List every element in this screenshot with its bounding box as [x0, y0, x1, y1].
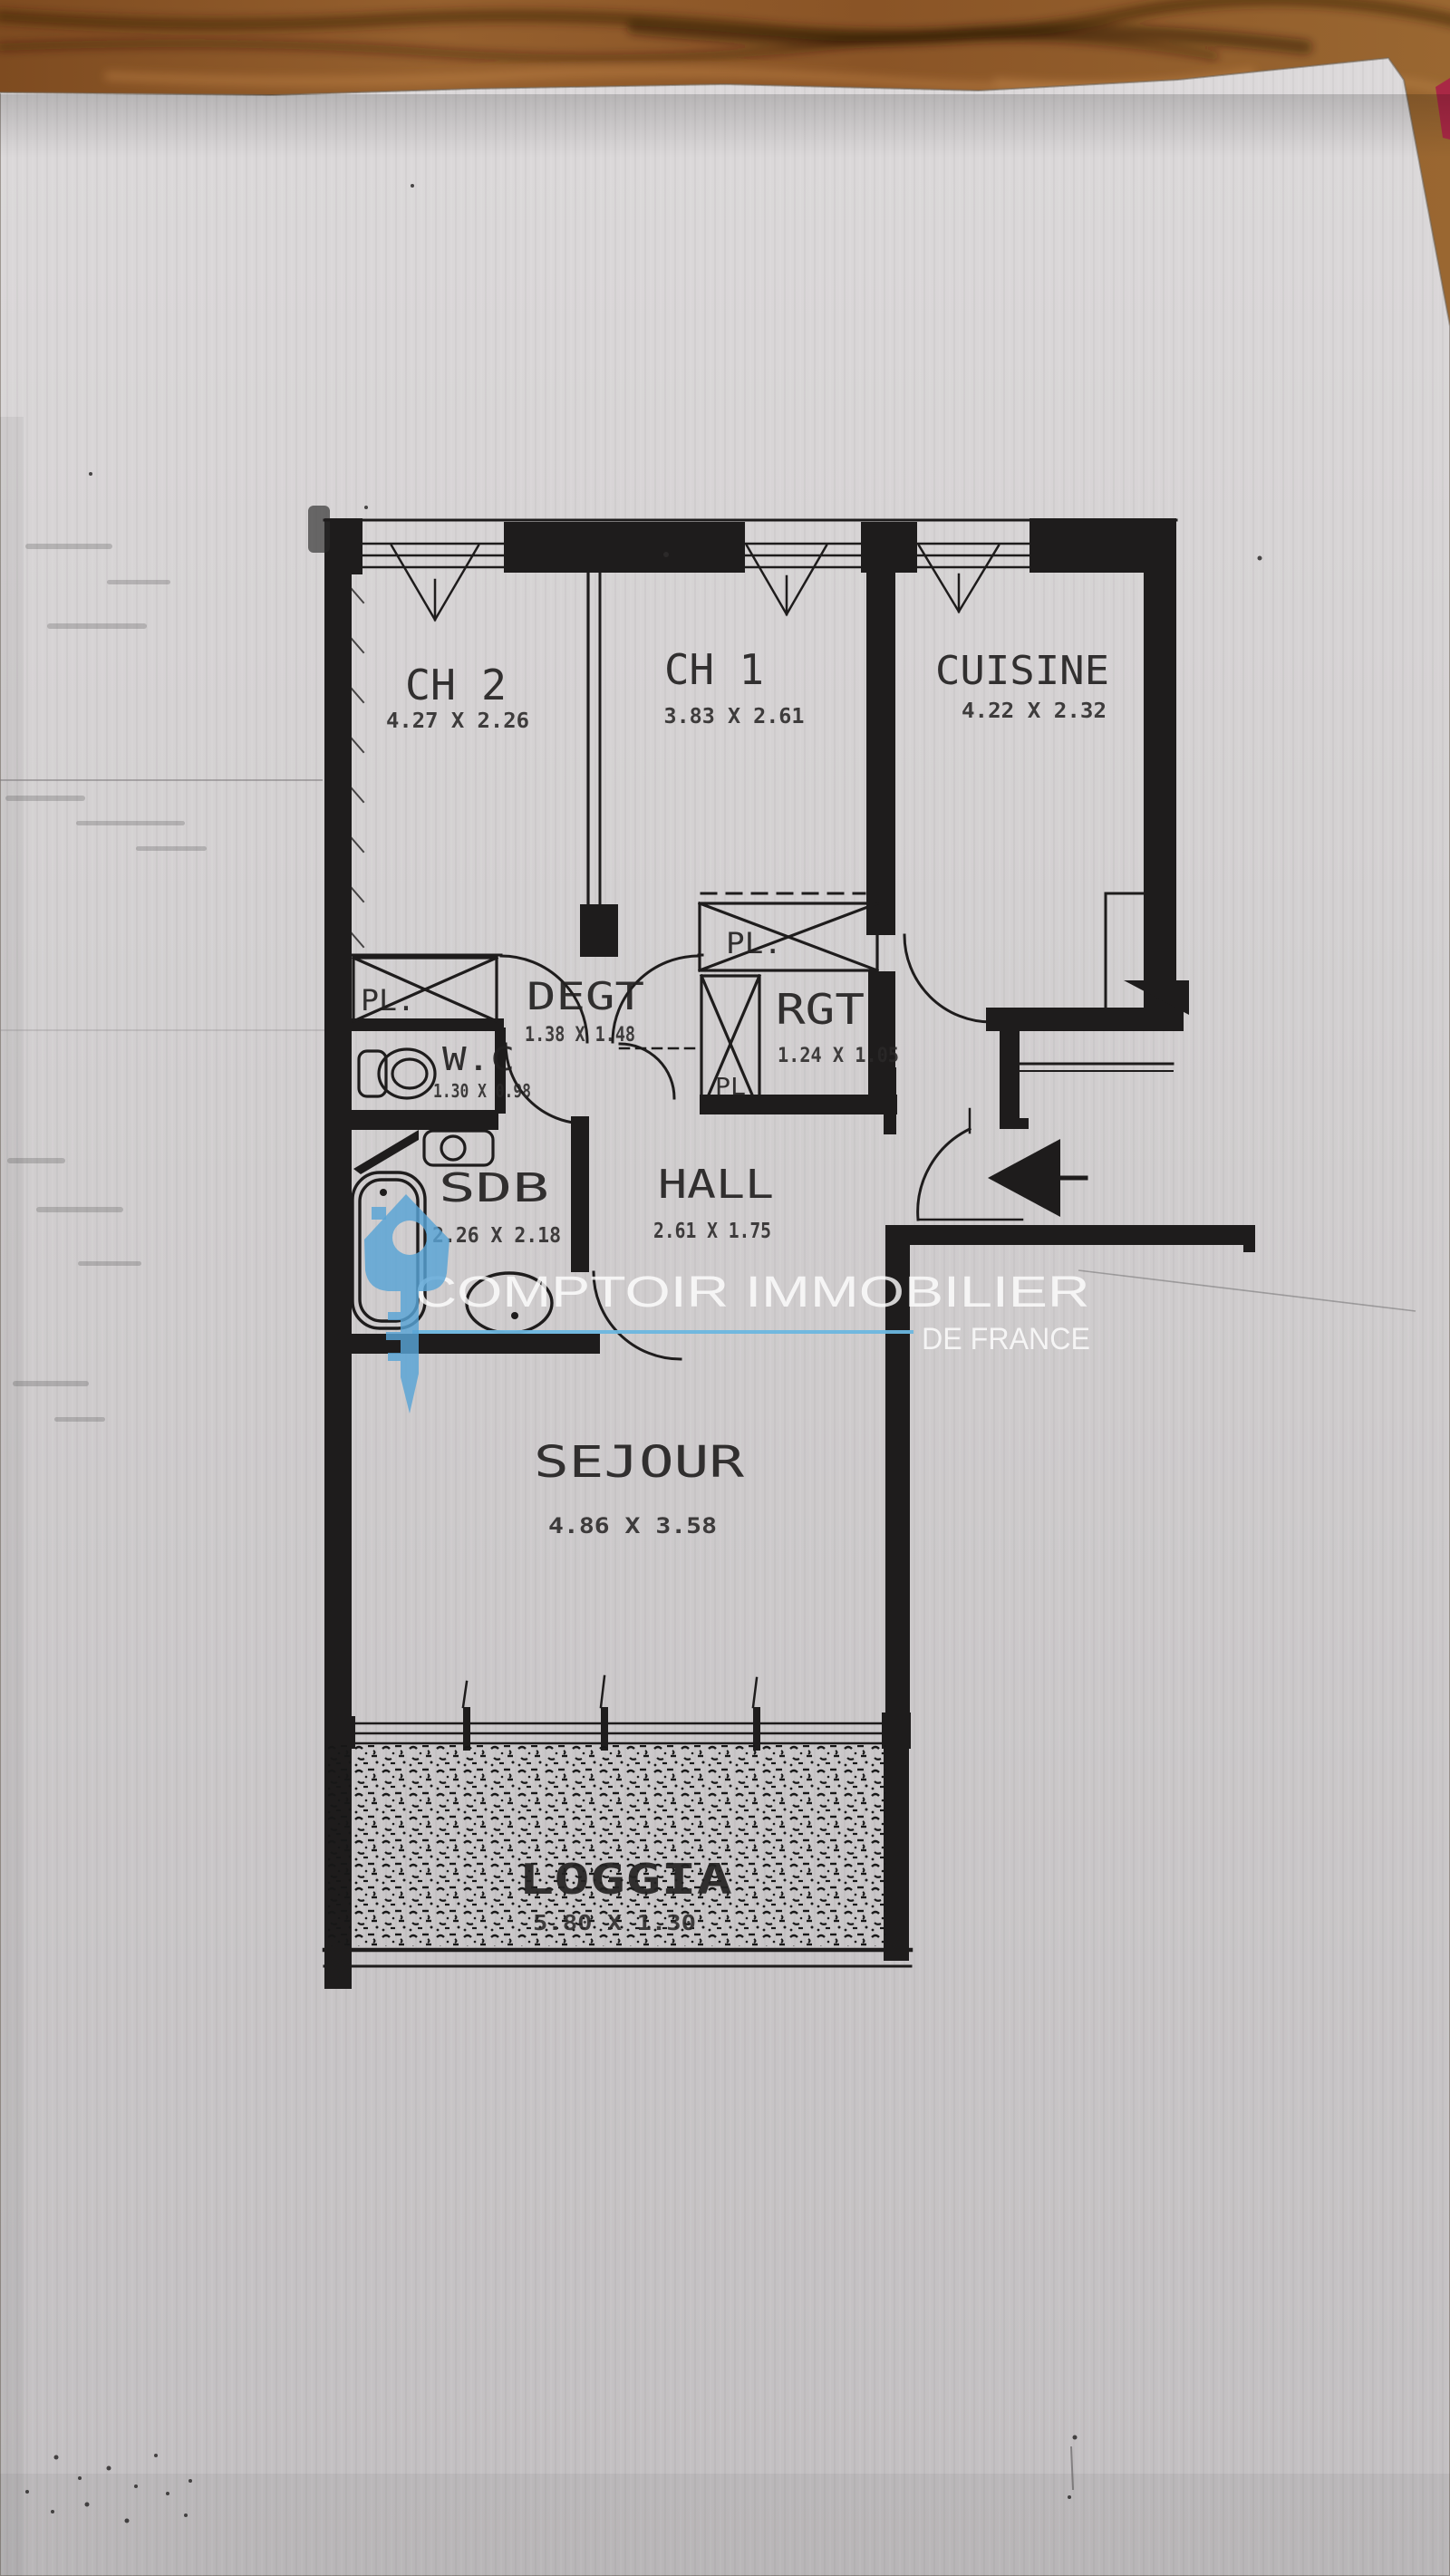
room-label-sdb: SDB 2.26 X 2.18	[432, 1165, 561, 1248]
wall-top-left-corner	[324, 518, 362, 574]
wall-sdb-bottom	[343, 1334, 600, 1354]
svg-text:2.26 X 2.18: 2.26 X 2.18	[432, 1224, 561, 1248]
svg-text:4.86 X 3.58: 4.86 X 3.58	[548, 1513, 717, 1539]
wall-hall-entry-jamb	[884, 1067, 896, 1134]
svg-text:CH 2: CH 2	[405, 661, 507, 709]
floor-plan-photo-canvas: CH 2 4.27 X 2.26 CH 1 3.83 X 2.61 CUISIN…	[0, 0, 1450, 2576]
wall-kitchen-inner-foot	[1000, 1118, 1029, 1129]
closet-label-pl1: PL.	[361, 983, 415, 1018]
svg-text:4.27 X 2.26: 4.27 X 2.26	[386, 709, 529, 733]
room-label-cuisine: CUISINE 4.22 X 2.32	[935, 648, 1109, 723]
svg-text:CH 1: CH 1	[664, 645, 764, 694]
room-label-degt: DEGT 1.38 X 1.48	[525, 974, 644, 1047]
wall-entry-end-nub	[1243, 1225, 1255, 1252]
svg-text:HALL: HALL	[658, 1162, 774, 1208]
wall-top-segment-b	[861, 522, 917, 573]
paper-sheet	[0, 58, 1450, 2576]
wall-loggia-right	[884, 1743, 909, 1961]
svg-text:CUISINE: CUISINE	[935, 648, 1109, 694]
wall-sdb-hall	[571, 1116, 589, 1272]
svg-text:1.30 X 0.98: 1.30 X 0.98	[433, 1080, 531, 1102]
wall-sejour-right	[885, 1245, 910, 1743]
wall-top-segment-a	[504, 522, 745, 573]
window-mullion-2	[601, 1707, 608, 1751]
svg-text:1.24 X 1.05: 1.24 X 1.05	[778, 1045, 899, 1067]
wall-ch1-cuisine	[866, 573, 895, 935]
svg-text:1.38 X 1.48: 1.38 X 1.48	[525, 1024, 635, 1047]
svg-text:SEJOUR: SEJOUR	[534, 1437, 744, 1488]
wall-kitchen-bottom	[986, 1008, 1184, 1031]
svg-text:2.61 X 1.75: 2.61 X 1.75	[653, 1220, 771, 1243]
svg-text:LOGGIA: LOGGIA	[518, 1855, 732, 1904]
svg-text:3.83 X 2.61: 3.83 X 2.61	[664, 705, 805, 728]
svg-text:DEGT: DEGT	[527, 974, 644, 1018]
svg-text:5.80 X 1.30: 5.80 X 1.30	[533, 1912, 696, 1935]
wall-right-upper	[1144, 518, 1176, 1026]
photo-of-floor-plan: CH 2 4.27 X 2.26 CH 1 3.83 X 2.61 CUISIN…	[0, 0, 1450, 2576]
wall-sejour-window-left-block	[324, 1716, 355, 1749]
closet-label-pl2: PL.	[726, 926, 782, 960]
window-mullion-3	[753, 1707, 760, 1751]
svg-text:RGT: RGT	[776, 985, 865, 1034]
watermark-subtext: DE FRANCE	[922, 1322, 1090, 1356]
closet-label-pl3: PL	[715, 1074, 746, 1101]
wall-top-left-smudge	[308, 506, 330, 553]
wall-kitchen-inner	[1000, 1031, 1020, 1124]
wall-entry-bottom	[885, 1225, 1255, 1245]
watermark-brand-text: COMPTOIR IMMOBILIER	[415, 1269, 1090, 1317]
svg-text:W.C: W.C	[442, 1041, 515, 1078]
wall-wc-bottom	[343, 1110, 498, 1130]
svg-text:SDB: SDB	[439, 1165, 549, 1211]
window-mullion-1	[463, 1707, 470, 1751]
svg-text:4.22 X 2.32: 4.22 X 2.32	[962, 699, 1107, 723]
room-label-hall: HALL 2.61 X 1.75	[653, 1162, 774, 1243]
